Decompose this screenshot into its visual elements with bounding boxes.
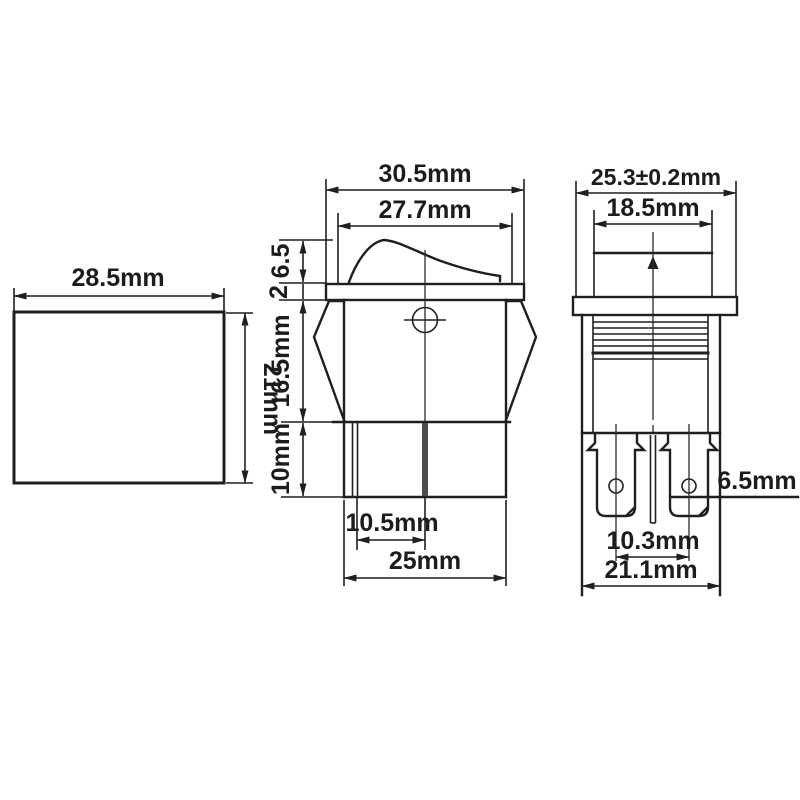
rocker-switch-drawing: 28.5mm 21mm: [0, 0, 800, 800]
front-view: 30.5mm 27.7mm 6.5 2 16.5mm 10mm: [265, 160, 536, 586]
front-terminal-pitch-dimension: 10.5mm: [345, 497, 438, 550]
dim-label-front-terminal-pitch: 10.5mm: [345, 509, 438, 537]
side-body-width-dimension: 21.1mm: [582, 556, 720, 586]
dim-label-front-overall-width: 30.5mm: [378, 160, 471, 188]
dim-label-flange-thickness: 2: [265, 285, 293, 299]
dim-label-side-body-width: 21.1mm: [604, 556, 697, 584]
dim-label-upper-body-height: 16.5mm: [267, 314, 295, 407]
dim-label-rocker-height: 6.5: [267, 244, 295, 279]
lower-body: [333, 422, 510, 497]
front-left-dimension-column: 6.5 2 16.5mm 10mm: [265, 240, 346, 497]
panel-cutout-view: 28.5mm 21mm: [14, 264, 286, 483]
right-snap-wing: [506, 301, 536, 420]
dim-label-side-overall-width: 25.3±0.2mm: [591, 164, 721, 190]
dim-label-front-rocker-width: 27.7mm: [378, 196, 471, 224]
dim-label-panel-width: 28.5mm: [71, 264, 164, 292]
panel-cutout-width-dimension: 28.5mm: [14, 264, 224, 312]
panel-cutout-rectangle: [14, 312, 224, 483]
dim-label-lower-body-height: 10mm: [267, 423, 295, 495]
side-mounting-flange: [573, 297, 737, 315]
side-view: 25.3±0.2mm 18.5mm: [573, 164, 798, 595]
left-snap-wing: [314, 301, 344, 420]
dim-label-side-rocker-width: 18.5mm: [606, 194, 699, 222]
center-terminal-edge-view: [651, 435, 656, 523]
technical-drawing-canvas: 28.5mm 21mm: [0, 0, 800, 800]
dim-label-front-body-width: 25mm: [389, 547, 461, 575]
dim-label-terminal-width: 6.5mm: [717, 467, 796, 495]
dim-label-side-terminal-pitch: 10.3mm: [606, 527, 699, 555]
body-ribs: [593, 322, 708, 359]
